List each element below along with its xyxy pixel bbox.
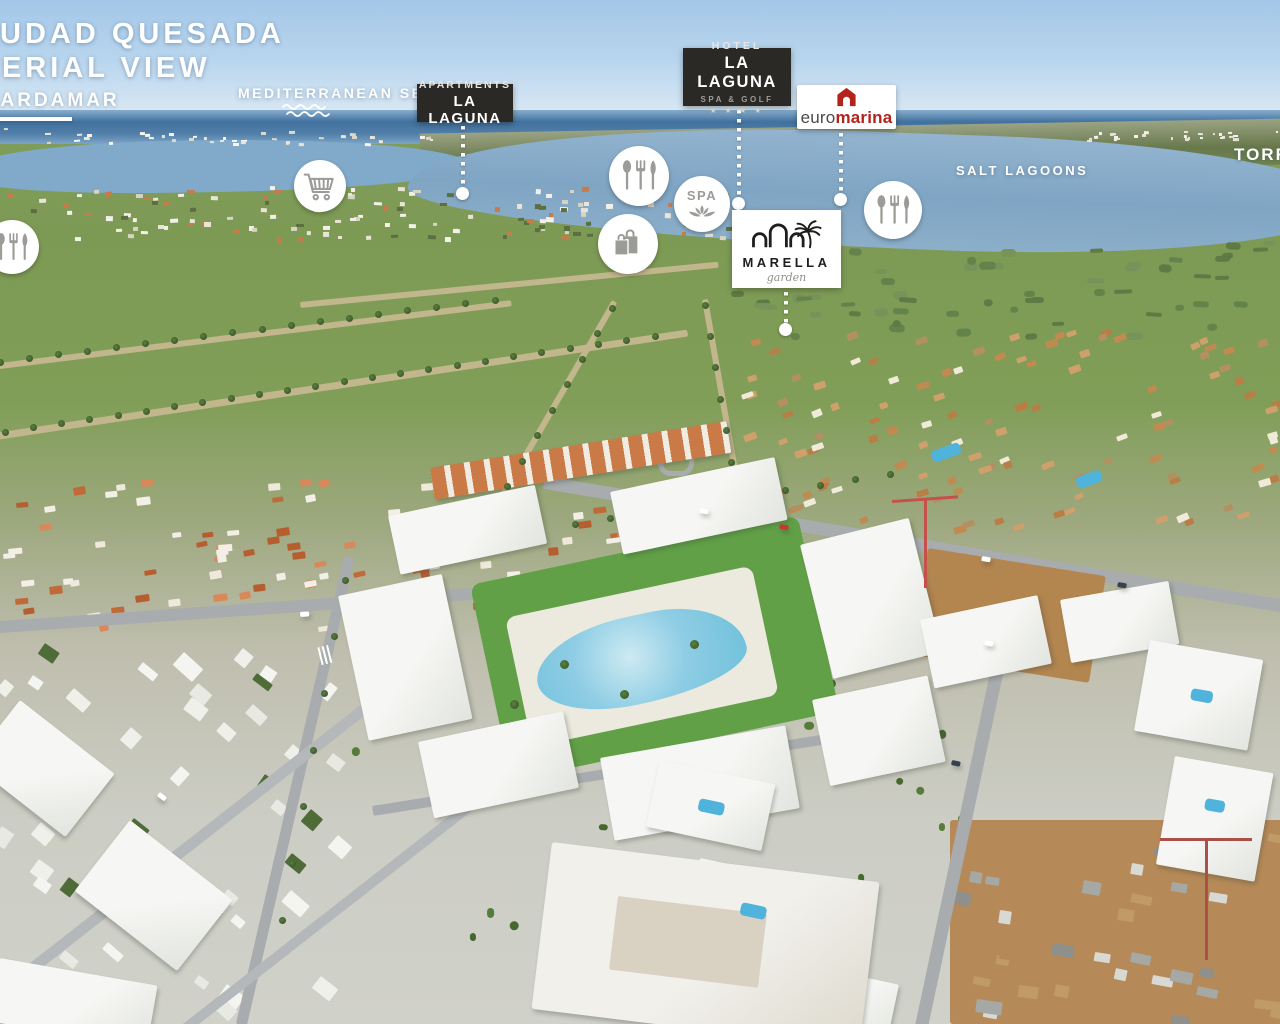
terrain-shape: [170, 766, 190, 786]
terrain-shape: [1155, 515, 1169, 525]
hotel-badge-name: LA LAGUNA: [683, 54, 791, 92]
terrain-shape: [145, 133, 150, 136]
terrain-shape: [892, 320, 901, 327]
terrain-shape: [1253, 247, 1269, 252]
terrain-shape: [510, 700, 519, 709]
terrain-shape: [849, 248, 863, 256]
terrain-shape: [731, 291, 744, 297]
terrain-shape: [106, 216, 113, 221]
terrain-shape: [188, 223, 194, 226]
terrain-shape: [425, 366, 432, 373]
guardamar-label: GUARDAMAR: [0, 90, 120, 112]
terrain-shape: [946, 310, 959, 316]
terrain-shape: [682, 232, 686, 236]
terrain-shape: [1054, 984, 1070, 998]
terrain-shape: [831, 486, 843, 494]
terrain-shape: [286, 141, 290, 144]
terrain-shape: [502, 235, 506, 239]
terrain-shape: [136, 194, 143, 198]
terrain-shape: [623, 337, 630, 344]
euromarina-house-icon: [835, 87, 858, 107]
terrain-shape: [33, 876, 52, 894]
terrain-shape: [584, 202, 589, 206]
terrain-shape: [743, 432, 757, 443]
terrain-shape: [15, 597, 29, 605]
terrain-shape: [534, 432, 541, 439]
terrain-shape: [538, 349, 545, 356]
terrain-shape: [58, 950, 78, 969]
terrain-shape: [1257, 338, 1268, 348]
terrain-shape: [705, 233, 713, 237]
terrain-shape: [116, 484, 126, 491]
terrain-shape: [1219, 363, 1231, 372]
terrain-shape: [1045, 338, 1058, 348]
terrain-shape: [879, 401, 889, 409]
terrain-shape: [84, 137, 89, 140]
terrain-shape: [652, 333, 659, 340]
terrain-shape: [447, 193, 454, 197]
terrain-shape: [1153, 421, 1166, 431]
terrain-shape: [311, 976, 338, 1002]
terrain-shape: [375, 311, 382, 318]
restaurant-right-poi: [864, 181, 922, 239]
terrain-shape: [109, 142, 113, 145]
terrain-shape: [1175, 305, 1185, 311]
terrain-shape: [850, 357, 861, 366]
terrain-shape: [272, 497, 284, 504]
terrain-shape: [187, 190, 195, 193]
terrain-shape: [994, 517, 1004, 525]
apartments-badge-top: APARTMENTS: [417, 79, 513, 91]
terrain-shape: [26, 355, 33, 362]
terrain-shape: [284, 387, 291, 394]
terrain-shape: [462, 300, 469, 307]
terrain-shape: [1146, 312, 1163, 317]
terrain-shape: [132, 218, 137, 223]
terrain-shape: [55, 351, 62, 358]
terrain-shape: [915, 336, 928, 345]
terrain-shape: [373, 202, 381, 206]
terrain-shape: [941, 368, 952, 378]
terrain-shape: [586, 221, 591, 225]
terrain-shape: [999, 910, 1013, 924]
terrain-shape: [31, 209, 37, 213]
terrain-shape: [983, 299, 993, 307]
terrain-shape: [1075, 469, 1104, 489]
terrain-shape: [978, 465, 992, 475]
terrain-shape: [517, 204, 522, 209]
terrain-shape: [49, 585, 63, 594]
terrain-shape: [282, 890, 311, 918]
terrain-shape: [690, 640, 699, 649]
terrain-shape: [1207, 323, 1217, 331]
terrain-shape: [594, 330, 601, 337]
terrain-shape: [1276, 131, 1278, 133]
terrain-shape: [141, 479, 154, 487]
terrain-shape: [1223, 503, 1234, 512]
terrain-shape: [1117, 908, 1134, 922]
terrain-shape: [292, 551, 306, 560]
terrain-shape: [229, 329, 236, 336]
terrain-shape: [261, 208, 267, 212]
shopping-poi: [598, 214, 658, 274]
terrain-shape: [8, 548, 22, 555]
terrain-shape: [782, 487, 789, 494]
terrain-shape: [341, 135, 347, 138]
terrain-shape: [116, 229, 122, 232]
terrain-shape: [75, 237, 81, 241]
terrain-shape: [1110, 133, 1114, 136]
terrain-shape: [220, 140, 224, 142]
terrain-shape: [338, 236, 342, 239]
terrain-shape: [933, 393, 946, 403]
terrain-shape: [113, 344, 120, 351]
marella-badge-subtitle: garden: [767, 271, 807, 284]
terrain-shape: [172, 532, 182, 538]
terrain-shape: [668, 203, 672, 207]
terrain-shape: [291, 227, 297, 231]
terrain-shape: [272, 138, 277, 140]
terrain-shape: [1233, 301, 1247, 308]
terrain-shape: [172, 652, 203, 682]
terrain-shape: [778, 437, 789, 445]
terrain-shape: [979, 262, 996, 270]
terrain-shape: [388, 485, 547, 575]
terrain-shape: [158, 225, 164, 229]
terrain-shape: [968, 452, 982, 462]
terrain-shape: [723, 427, 730, 434]
terrain-shape: [947, 476, 957, 486]
terrain-shape: [1089, 138, 1093, 140]
terrain-shape: [1184, 131, 1188, 133]
terrain-shape: [213, 593, 227, 602]
terrain-shape: [1025, 333, 1037, 340]
terrain-shape: [369, 374, 376, 381]
terrain-shape: [143, 408, 150, 415]
terrain-shape: [194, 975, 210, 990]
terrain-shape: [7, 192, 13, 197]
terrain-shape: [162, 135, 165, 138]
terrain-shape: [348, 193, 352, 196]
terrain-shape: [495, 207, 501, 212]
restaurant-cutlery-icon: [0, 231, 30, 264]
terrain-shape: [268, 483, 280, 491]
terrain-shape: [606, 537, 620, 544]
terrain-shape: [1026, 360, 1037, 368]
terrain-shape: [1147, 385, 1157, 393]
terrain-shape: [930, 442, 962, 464]
terrain-shape: [418, 711, 579, 818]
terrain-shape: [750, 338, 762, 347]
terrain-shape: [579, 356, 586, 363]
restaurant-cutlery-icon: [619, 158, 659, 194]
terrain-shape: [482, 358, 489, 365]
terrain-shape: [128, 234, 134, 238]
terrain-shape: [606, 204, 613, 209]
spa-label: SPA: [687, 189, 717, 202]
terrain-shape: [869, 417, 880, 425]
terrain-shape: [141, 231, 148, 235]
terrain-shape: [397, 207, 403, 211]
terrain-shape: [810, 311, 822, 318]
terrain-shape: [223, 137, 226, 140]
terrain-shape: [300, 611, 309, 617]
terrain-shape: [58, 420, 65, 427]
terrain-shape: [227, 216, 233, 220]
terrain-shape: [1025, 298, 1036, 303]
terrain-shape: [404, 307, 411, 314]
terrain-shape: [86, 416, 93, 423]
terrain-shape: [984, 417, 994, 425]
terrain-shape: [1244, 391, 1256, 401]
terrain-shape: [351, 188, 355, 192]
terrain-shape: [453, 229, 459, 233]
terrain-shape: [562, 236, 570, 240]
terrain-shape: [200, 333, 207, 340]
terrain-shape: [1024, 290, 1035, 296]
terrain-shape: [193, 135, 197, 137]
terrain-shape: [999, 945, 1015, 961]
terrain-shape: [1204, 343, 1217, 352]
terrain-shape: [1113, 333, 1127, 343]
terrain-shape: [149, 137, 154, 140]
terrain-shape: [289, 131, 295, 134]
terrain-shape: [323, 232, 329, 237]
terrain-shape: [440, 203, 447, 206]
terrain-shape: [301, 809, 323, 831]
terrain-shape: [1193, 301, 1209, 307]
terrain-shape: [217, 555, 227, 563]
terrain-shape: [951, 760, 961, 767]
terrain-shape: [1228, 132, 1232, 134]
terrain-shape: [115, 412, 122, 419]
terrain-shape: [321, 690, 328, 697]
terrain-shape: [1229, 136, 1234, 138]
terrain-shape: [956, 328, 972, 336]
hotel-pointer-dot: [732, 197, 745, 210]
terrain-shape: [581, 208, 588, 213]
terrain-shape: [1125, 265, 1138, 271]
terrain-shape: [0, 679, 14, 697]
terrain-shape: [39, 198, 47, 202]
marella-pointer-dot: [779, 323, 792, 336]
terrain-shape: [261, 132, 266, 135]
terrain-shape: [1263, 240, 1275, 246]
torrevieja-label: TORREVIEJA: [1234, 145, 1280, 165]
terrain-shape: [164, 226, 168, 230]
terrain-shape: [85, 213, 91, 216]
terrain-shape: [276, 573, 286, 582]
terrain-shape: [573, 512, 584, 520]
terrain-shape: [245, 704, 268, 727]
terrain-shape: [259, 326, 266, 333]
terrain-shape: [312, 383, 319, 390]
terrain-shape: [216, 722, 237, 742]
terrain-shape: [1099, 132, 1102, 135]
terrain-shape: [921, 420, 932, 428]
terrain-shape: [296, 224, 304, 227]
terrain-shape: [243, 549, 255, 557]
shopping-bags-icon: [611, 227, 645, 261]
terrain-shape: [342, 577, 349, 584]
terrain-shape: [881, 278, 895, 285]
terrain-shape: [204, 137, 208, 140]
terrain-shape: [73, 486, 86, 496]
terrain-shape: [84, 348, 91, 355]
terrain-shape: [75, 820, 233, 971]
terrain-shape: [391, 234, 398, 238]
terrain-shape: [263, 196, 267, 200]
terrain-shape: [868, 434, 879, 443]
terrain-shape: [939, 823, 945, 831]
terrain-shape: [370, 136, 375, 139]
terrain-shape: [791, 374, 802, 383]
terrain-shape: [1160, 838, 1252, 841]
terrain-shape: [209, 570, 222, 580]
terrain-shape: [227, 530, 239, 537]
terrain-shape: [796, 297, 812, 302]
terrain-shape: [1220, 137, 1223, 139]
terrain-shape: [561, 208, 567, 212]
terrain-shape: [1170, 1015, 1189, 1024]
terrain-shape: [1090, 248, 1103, 253]
terrain-shape: [39, 524, 52, 531]
terrain-shape: [252, 228, 257, 233]
terrain-shape: [609, 305, 616, 312]
terrain-shape: [1149, 454, 1162, 464]
mediterranean-sea-label: MEDITERRANEAN SEA: [238, 85, 436, 101]
terrain-shape: [916, 786, 925, 794]
terrain-shape: [549, 407, 556, 414]
terrain-shape: [747, 374, 758, 383]
terrain-shape: [0, 958, 158, 1024]
apartments-badge-name: LA LAGUNA: [417, 93, 513, 127]
terrain-shape: [620, 690, 629, 699]
terrain-shape: [1190, 341, 1201, 351]
terrain-shape: [21, 579, 35, 587]
terrain-shape: [445, 237, 451, 242]
terrain-shape: [1209, 370, 1220, 379]
terrain-shape: [868, 357, 879, 366]
terrain-shape: [803, 498, 816, 508]
apartments-pointer-line: [461, 126, 465, 188]
terrain-shape: [994, 352, 1007, 362]
euromarina-pointer-line: [839, 133, 843, 193]
terrain-shape: [331, 633, 338, 640]
terrain-shape: [1010, 306, 1019, 313]
terrain-shape: [1003, 460, 1013, 469]
terrain-shape: [1018, 985, 1040, 999]
hotel-badge-stars: ★ ★ ★ ★: [683, 106, 791, 115]
terrain-shape: [791, 333, 800, 340]
terrain-shape: [470, 933, 477, 941]
terrain-shape: [218, 544, 232, 552]
terrain-shape: [918, 441, 928, 450]
terrain-shape: [962, 519, 976, 529]
terrain-shape: [135, 594, 149, 603]
terrain-shape: [157, 792, 167, 801]
terrain-shape: [1066, 329, 1077, 337]
terrain-shape: [1156, 756, 1274, 882]
guardamar-direction-line: [0, 117, 72, 121]
terrain-shape: [1103, 457, 1113, 465]
terrain-shape: [326, 753, 346, 772]
terrain-shape: [1094, 952, 1111, 963]
terrain-shape: [16, 502, 28, 508]
apartments-la-laguna-badge: APARTMENTS LA LAGUNA: [417, 84, 513, 122]
terrain-shape: [178, 194, 184, 197]
terrain-shape: [317, 318, 324, 325]
terrain-shape: [896, 778, 904, 786]
euromarina-wordmark: euromarina: [801, 108, 893, 128]
terrain-shape: [305, 494, 316, 502]
terrain-shape: [420, 136, 425, 139]
terrain-shape: [804, 721, 814, 730]
terrain-shape: [1079, 349, 1090, 359]
terrain-shape: [1074, 493, 1084, 501]
terrain-shape: [570, 190, 574, 193]
terrain-shape: [1234, 376, 1244, 385]
terrain-shape: [346, 315, 353, 322]
terrain-shape: [1205, 840, 1208, 960]
terrain-shape: [120, 727, 143, 750]
terrain-shape: [562, 200, 569, 204]
terrain-shape: [875, 269, 887, 274]
terrain-shape: [314, 561, 327, 569]
terrain-shape: [318, 479, 330, 488]
terrain-shape: [152, 201, 158, 205]
apartments-pointer-dot: [456, 187, 469, 200]
hotel-pointer-line: [737, 110, 741, 198]
terrain-shape: [144, 197, 151, 200]
terrain-shape: [233, 648, 254, 669]
marella-badge-name: MARELLA: [742, 255, 830, 270]
terrain-shape: [1114, 289, 1132, 294]
terrain-shape: [468, 214, 473, 218]
terrain-shape: [289, 860, 296, 867]
terrain-shape: [1222, 252, 1233, 258]
terrain-shape: [171, 403, 178, 410]
terrain-shape: [841, 302, 856, 307]
terrain-shape: [598, 824, 607, 831]
terrain-shape: [341, 378, 348, 385]
terrain-shape: [1001, 249, 1016, 257]
terrain-shape: [45, 132, 51, 134]
terrain-shape: [168, 599, 181, 607]
terrain-shape: [813, 381, 827, 391]
terrain-shape: [1223, 346, 1236, 356]
terrain-shape: [164, 202, 169, 206]
terrain-shape: [351, 747, 359, 756]
terrain-shape: [1053, 509, 1066, 519]
terrain-shape: [300, 479, 312, 487]
terrain-shape: [319, 572, 329, 580]
terrain-shape: [277, 238, 282, 243]
terrain-shape: [274, 190, 282, 194]
terrain-shape: [595, 341, 602, 348]
terrain-shape: [507, 232, 512, 236]
spa-lotus-icon: [688, 204, 716, 220]
terrain-shape: [719, 236, 725, 241]
terrain-shape: [190, 207, 197, 212]
terrain-shape: [536, 189, 541, 194]
terrain-shape: [712, 364, 719, 371]
terrain-shape: [77, 133, 83, 135]
terrain-shape: [546, 194, 553, 198]
terrain-shape: [74, 140, 80, 142]
restaurant-cutlery-icon: [874, 193, 912, 228]
terrain-shape: [287, 542, 301, 551]
